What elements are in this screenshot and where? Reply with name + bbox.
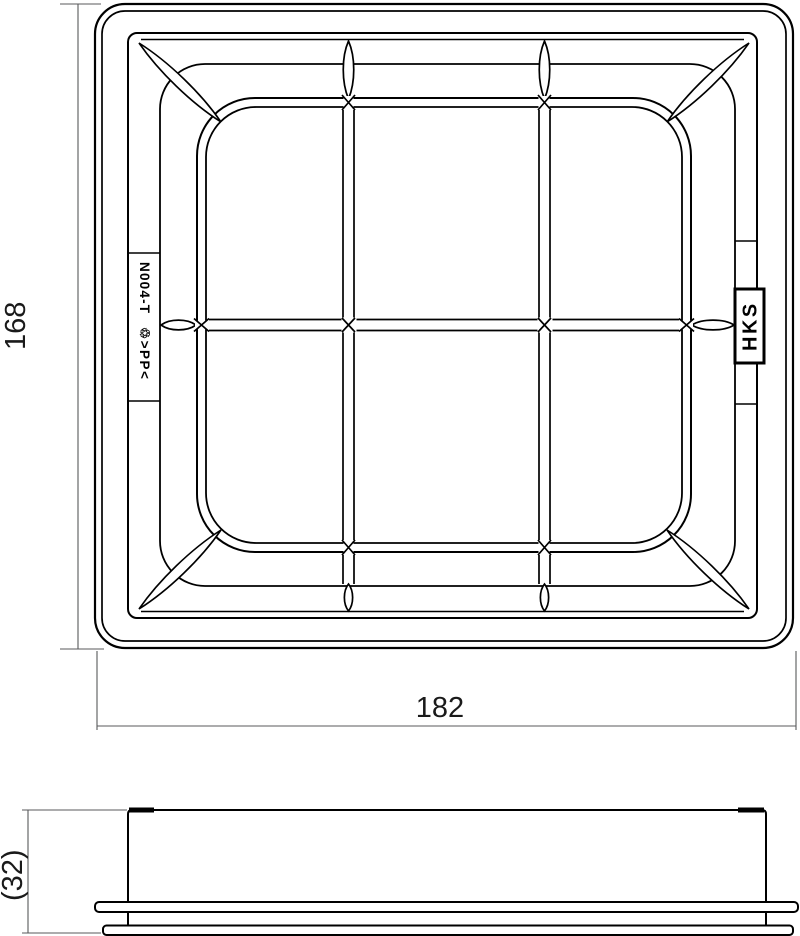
- grid-rib-vertical-right: [539, 110, 550, 584]
- corner-brace-top-left: [139, 43, 221, 122]
- rib-crossing-x: [538, 318, 551, 332]
- rib-end-bottom-right-lens: [540, 584, 548, 611]
- height-dimension-lines: [60, 4, 104, 649]
- grid-rib-vertical-left: [343, 110, 354, 584]
- width-dimension-label: 182: [416, 692, 464, 724]
- material-mark-text: ♲>PP<: [137, 327, 152, 380]
- corner-tab-right: [738, 808, 764, 813]
- rib-end-right-lens: [692, 320, 734, 330]
- corner-tab-left: [129, 808, 154, 813]
- rib-end-left-lens: [161, 320, 196, 330]
- grid-rib-horizontal: [209, 320, 679, 331]
- pleat-area-inner-line: [206, 107, 682, 543]
- label-pocket-caps: [128, 241, 757, 404]
- corner-brace-bottom-left: [139, 530, 221, 609]
- rib-end-top-left-lens: [343, 41, 354, 99]
- brand-logo-text: HKS: [740, 301, 762, 351]
- pleat-area-outer-line: [197, 98, 691, 552]
- depth-dimension-label: (32): [0, 849, 29, 901]
- base-bar: [103, 926, 793, 936]
- flange-bar: [95, 902, 798, 912]
- air-filter-technical-drawing: N004-T ♲>PP< HKS 168 182 (32): [0, 0, 800, 936]
- height-dimension-label: 168: [0, 302, 32, 350]
- seal-edge-lines: [141, 40, 744, 612]
- corner-brace-top-right: [667, 43, 749, 122]
- rib-end-bottom-left-lens: [344, 584, 352, 611]
- rib-crossing-x: [342, 318, 355, 332]
- rib-end-top-right-lens: [539, 41, 550, 99]
- dimensions: 168 182 (32): [0, 4, 796, 933]
- plan-view: N004-T ♲>PP< HKS: [95, 4, 793, 648]
- side-view: [95, 808, 798, 936]
- corner-brace-bottom-right: [667, 530, 749, 609]
- depth-dimension-lines: [22, 810, 127, 933]
- air-filter-drawing-page: N004-T ♲>PP< HKS 168 182 (32): [0, 0, 800, 936]
- mid-frame-line: [160, 64, 735, 586]
- part-number-text: N004-T: [137, 262, 152, 314]
